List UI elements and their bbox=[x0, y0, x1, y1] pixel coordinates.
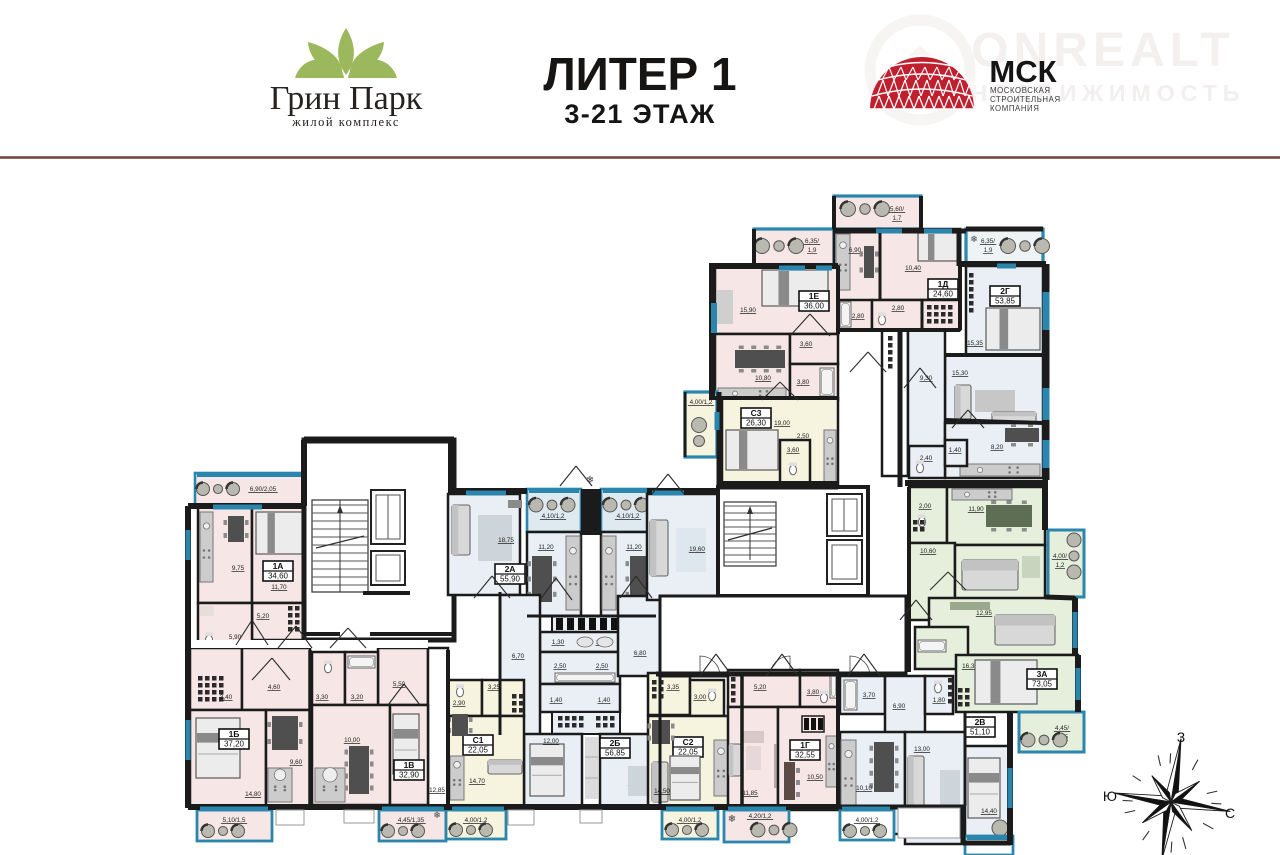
svg-text:СТРОИТЕЛЬНАЯ: СТРОИТЕЛЬНАЯ bbox=[990, 95, 1061, 104]
svg-text:3,80: 3,80 bbox=[807, 689, 820, 696]
svg-text:1Г: 1Г bbox=[800, 740, 810, 750]
svg-text:4,10/1,2: 4,10/1,2 bbox=[542, 513, 565, 520]
svg-text:3,80: 3,80 bbox=[797, 379, 810, 386]
svg-text:5,20: 5,20 bbox=[754, 684, 767, 691]
svg-text:2Г: 2Г bbox=[1000, 286, 1010, 296]
svg-text:10,00: 10,00 bbox=[344, 737, 360, 744]
svg-text:3,00: 3,00 bbox=[694, 694, 707, 701]
svg-text:1,7: 1,7 bbox=[893, 215, 902, 222]
svg-text:1В: 1В bbox=[404, 760, 415, 770]
svg-text:3,60: 3,60 bbox=[787, 447, 800, 454]
svg-text:КОМПАНИЯ: КОМПАНИЯ bbox=[990, 104, 1039, 113]
svg-text:3,60: 3,60 bbox=[800, 341, 813, 348]
svg-text:14,80: 14,80 bbox=[245, 791, 261, 798]
svg-text:4,00/1,2: 4,00/1,2 bbox=[856, 817, 879, 824]
svg-text:С2: С2 bbox=[683, 737, 694, 747]
svg-text:14,70: 14,70 bbox=[469, 778, 485, 785]
svg-text:10,80: 10,80 bbox=[755, 375, 771, 382]
svg-text:36,00: 36,00 bbox=[804, 302, 825, 311]
svg-text:6,35/: 6,35/ bbox=[805, 238, 819, 245]
svg-text:37,20: 37,20 bbox=[224, 740, 245, 749]
svg-text:6,35/: 6,35/ bbox=[981, 238, 995, 245]
svg-text:Грин Парк: Грин Парк bbox=[270, 80, 423, 117]
svg-text:1,80: 1,80 bbox=[933, 697, 946, 704]
svg-text:2,50: 2,50 bbox=[554, 663, 567, 670]
svg-text:1,40: 1,40 bbox=[550, 697, 563, 704]
svg-text:С1: С1 bbox=[473, 735, 484, 745]
svg-text:❄: ❄ bbox=[970, 234, 978, 244]
svg-text:34,60: 34,60 bbox=[268, 572, 289, 581]
svg-text:4,45/: 4,45/ bbox=[1055, 725, 1069, 732]
svg-text:3,70: 3,70 bbox=[863, 692, 876, 699]
svg-text:С3: С3 bbox=[751, 408, 762, 418]
svg-text:1Б: 1Б bbox=[229, 729, 240, 739]
svg-text:15,90: 15,90 bbox=[740, 307, 756, 314]
svg-text:З: З bbox=[1177, 729, 1185, 745]
svg-text:1,30: 1,30 bbox=[552, 639, 565, 646]
svg-text:6,80: 6,80 bbox=[634, 650, 647, 657]
svg-text:15,35: 15,35 bbox=[967, 340, 983, 347]
svg-text:3,40: 3,40 bbox=[220, 694, 233, 701]
svg-text:9,60: 9,60 bbox=[290, 759, 303, 766]
svg-text:2Б: 2Б bbox=[610, 738, 621, 748]
svg-text:3,30: 3,30 bbox=[316, 694, 329, 701]
svg-text:10,60: 10,60 bbox=[920, 548, 936, 555]
svg-text:12,95: 12,95 bbox=[976, 610, 992, 617]
svg-text:2,50: 2,50 bbox=[797, 433, 810, 440]
svg-text:4,45/1,35: 4,45/1,35 bbox=[398, 817, 425, 824]
svg-text:11,85: 11,85 bbox=[742, 790, 758, 797]
svg-text:4,20/1,2: 4,20/1,2 bbox=[749, 813, 772, 820]
svg-text:18,75: 18,75 bbox=[498, 537, 514, 544]
svg-text:1,9: 1,9 bbox=[984, 247, 993, 254]
svg-text:9,75: 9,75 bbox=[232, 565, 245, 572]
svg-text:53,85: 53,85 bbox=[995, 297, 1016, 306]
svg-text:14,50: 14,50 bbox=[654, 788, 670, 795]
svg-text:3,20: 3,20 bbox=[351, 694, 364, 701]
svg-text:12,00: 12,00 bbox=[543, 738, 559, 745]
svg-text:4,00/1,2: 4,00/1,2 bbox=[679, 817, 702, 824]
svg-text:4,00/1,2: 4,00/1,2 bbox=[690, 399, 713, 406]
svg-text:11,20: 11,20 bbox=[626, 544, 642, 551]
svg-text:1,2: 1,2 bbox=[1056, 562, 1065, 569]
svg-text:4,60: 4,60 bbox=[268, 684, 281, 691]
svg-text:1,40: 1,40 bbox=[598, 697, 611, 704]
svg-text:6,90: 6,90 bbox=[893, 703, 906, 710]
svg-text:14,40: 14,40 bbox=[981, 808, 997, 815]
svg-text:1А: 1А bbox=[273, 561, 284, 571]
svg-text:19,60: 19,60 bbox=[689, 546, 705, 553]
svg-text:Ю: Ю bbox=[1103, 788, 1117, 804]
svg-text:ЛИТЕР 1: ЛИТЕР 1 bbox=[543, 48, 736, 100]
svg-text:10,40: 10,40 bbox=[905, 265, 921, 272]
svg-text:11,70: 11,70 bbox=[271, 584, 287, 591]
svg-text:11,90: 11,90 bbox=[968, 506, 984, 513]
svg-text:3А: 3А bbox=[1037, 669, 1048, 679]
svg-text:12,85: 12,85 bbox=[429, 787, 445, 794]
svg-text:3-21 ЭТАЖ: 3-21 ЭТАЖ bbox=[564, 99, 715, 129]
svg-text:22,05: 22,05 bbox=[678, 748, 699, 757]
svg-text:73,05: 73,05 bbox=[1032, 680, 1053, 689]
svg-text:2,90: 2,90 bbox=[453, 700, 466, 707]
svg-text:МОСКОВСКАЯ: МОСКОВСКАЯ bbox=[990, 86, 1051, 95]
svg-text:6,70: 6,70 bbox=[512, 653, 525, 660]
svg-text:2В: 2В bbox=[975, 717, 986, 727]
svg-text:26,30: 26,30 bbox=[746, 419, 767, 428]
svg-text:15,30: 15,30 bbox=[952, 370, 968, 377]
svg-text:С: С bbox=[1225, 805, 1235, 821]
svg-text:32,90: 32,90 bbox=[399, 771, 420, 780]
svg-text:3,35: 3,35 bbox=[667, 684, 680, 691]
svg-text:1Д: 1Д bbox=[938, 279, 949, 289]
svg-text:❄: ❄ bbox=[728, 814, 736, 825]
svg-text:жилой комплекс: жилой комплекс bbox=[291, 115, 400, 129]
svg-text:8,20: 8,20 bbox=[991, 444, 1004, 451]
svg-text:МСК: МСК bbox=[989, 54, 1056, 89]
svg-text:56,85: 56,85 bbox=[605, 749, 626, 758]
svg-text:2,80: 2,80 bbox=[892, 305, 905, 312]
svg-text:5,10/1,5: 5,10/1,5 bbox=[223, 817, 246, 824]
svg-text:2А: 2А bbox=[505, 564, 516, 574]
svg-text:10,10: 10,10 bbox=[856, 785, 872, 792]
svg-text:2,80: 2,80 bbox=[852, 313, 865, 320]
svg-text:55,90: 55,90 bbox=[500, 575, 521, 584]
svg-text:11,20: 11,20 bbox=[538, 544, 554, 551]
svg-text:24,60: 24,60 bbox=[933, 290, 954, 299]
svg-text:5,60/: 5,60/ bbox=[890, 206, 904, 213]
svg-text:4,10/1,2: 4,10/1,2 bbox=[617, 513, 640, 520]
svg-text:10,50: 10,50 bbox=[807, 774, 823, 781]
svg-text:2,50: 2,50 bbox=[596, 663, 609, 670]
svg-text:1,9: 1,9 bbox=[808, 247, 817, 254]
svg-text:6,90/2,05: 6,90/2,05 bbox=[250, 486, 277, 493]
svg-text:13,00: 13,00 bbox=[914, 746, 930, 753]
svg-text:32,55: 32,55 bbox=[795, 751, 816, 760]
svg-text:2,00: 2,00 bbox=[919, 503, 932, 510]
svg-text:1,40: 1,40 bbox=[949, 447, 962, 454]
svg-text:19,00: 19,00 bbox=[774, 420, 790, 427]
svg-text:22,05: 22,05 bbox=[468, 746, 489, 755]
svg-text:51,10: 51,10 bbox=[970, 728, 991, 737]
svg-text:4,00/: 4,00/ bbox=[1053, 553, 1067, 560]
svg-text:5,20: 5,20 bbox=[257, 613, 270, 620]
svg-text:1Е: 1Е bbox=[809, 291, 820, 301]
